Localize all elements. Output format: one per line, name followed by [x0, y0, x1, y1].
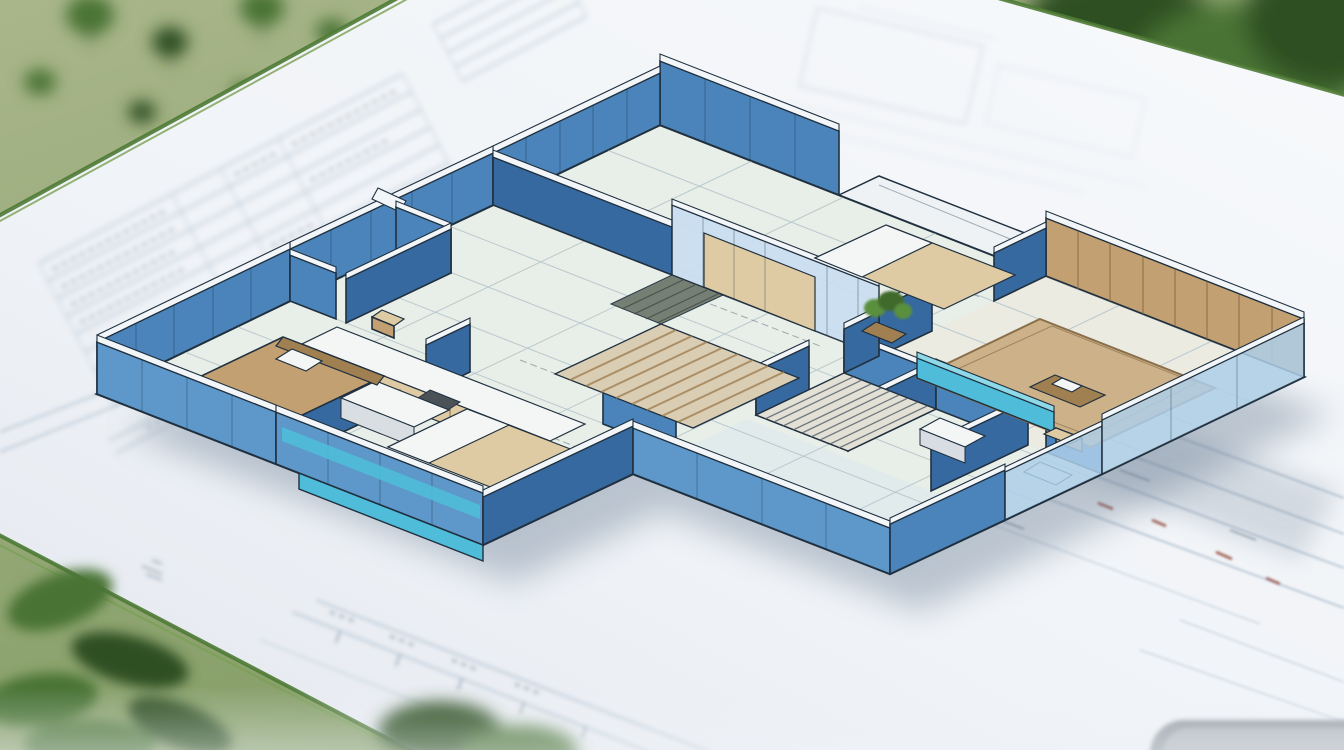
haze-overlay: [0, 686, 1344, 750]
scene-canvas: [0, 0, 1344, 750]
architectural-visualization: [0, 0, 1344, 750]
